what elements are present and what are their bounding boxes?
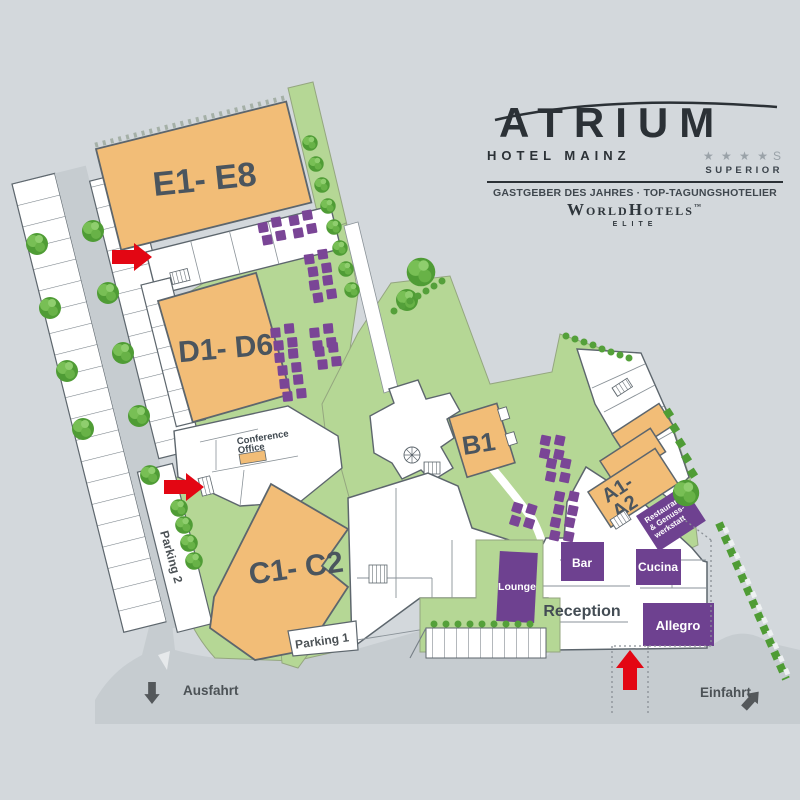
venue-cucina: Cucina xyxy=(636,549,681,585)
lounge-label: Lounge xyxy=(498,581,536,593)
logo-affiliation: WorldHotels™ xyxy=(487,200,783,220)
tree xyxy=(344,282,359,297)
allegro-label: Allegro xyxy=(656,618,701,633)
tree xyxy=(26,233,48,255)
tree xyxy=(180,534,198,552)
stars-icon: ★ ★ ★ ★S xyxy=(703,149,783,163)
tree xyxy=(326,219,341,234)
tree xyxy=(185,552,203,570)
building-b1-label: B1 xyxy=(460,426,498,461)
logo-wordmark: ATRIUM xyxy=(487,90,783,146)
bar-label: Bar xyxy=(572,556,592,570)
superior-s: S xyxy=(773,149,783,163)
hotel-logo: ATRIUM HOTEL MAINZ ★ ★ ★ ★S SUPERIOR GAS… xyxy=(487,90,783,228)
exit-label: Ausfahrt xyxy=(183,683,239,698)
reception-label: Reception xyxy=(543,603,620,620)
logo-award-line: GASTGEBER DES JAHRES · TOP-TAGUNGSHOTELI… xyxy=(487,187,783,199)
tree xyxy=(175,516,193,534)
tree xyxy=(314,177,329,192)
parking-stalls-south xyxy=(410,628,546,658)
stairs-icon xyxy=(369,565,387,583)
tree xyxy=(72,418,94,440)
logo-affiliation-tier: ELITE xyxy=(487,221,783,228)
cucina-label: Cucina xyxy=(638,560,678,574)
tree xyxy=(39,297,61,319)
venue-lounge: Lounge xyxy=(496,551,538,623)
logo-divider xyxy=(487,181,783,183)
tree xyxy=(170,499,188,517)
tree xyxy=(302,135,317,150)
tree xyxy=(97,282,119,304)
venue-bar: Bar xyxy=(561,542,604,581)
tree xyxy=(320,198,335,213)
logo-brand: ATRIUM xyxy=(499,102,725,144)
tree xyxy=(673,480,699,506)
venue-allegro: Allegro xyxy=(643,603,714,646)
tree xyxy=(407,258,436,287)
tree xyxy=(332,240,347,255)
tree xyxy=(82,220,104,242)
logo-subbrand: HOTEL MAINZ xyxy=(487,148,631,163)
tree xyxy=(308,156,323,171)
tree xyxy=(128,405,150,427)
tree xyxy=(338,261,353,276)
stairs-icon xyxy=(424,462,440,474)
hotel-site-map-page: Parking 2 E1- E8 D1- D6 Conference Offic… xyxy=(0,0,800,800)
tree xyxy=(112,342,134,364)
tree xyxy=(140,465,160,485)
entrance-label: Einfahrt xyxy=(700,685,752,700)
logo-superior: SUPERIOR xyxy=(487,165,783,176)
trademark-symbol: ™ xyxy=(694,202,703,210)
tree xyxy=(56,360,78,382)
